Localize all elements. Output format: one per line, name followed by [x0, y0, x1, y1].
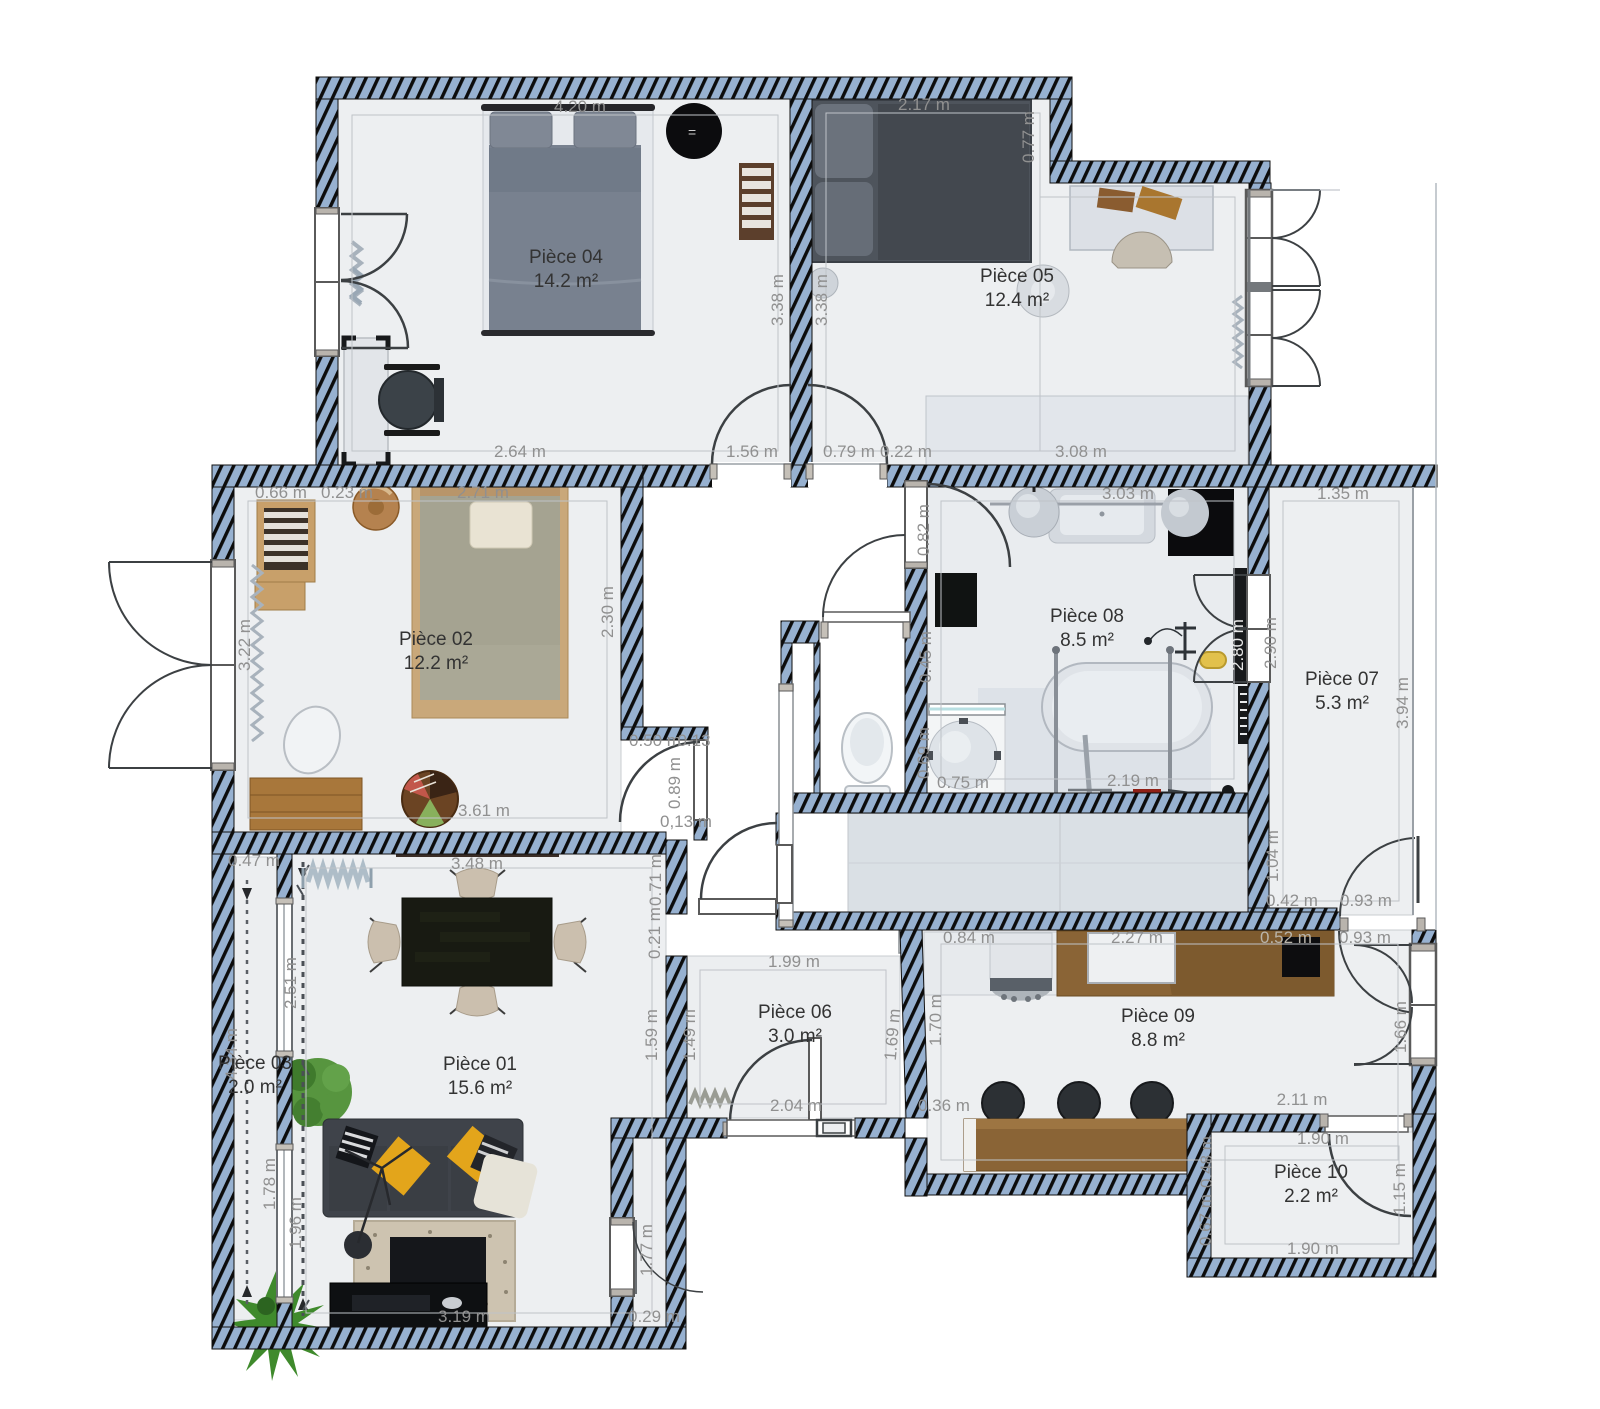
svg-text:1.90 m: 1.90 m — [1297, 1129, 1349, 1148]
svg-text:2.51 m: 2.51 m — [281, 957, 300, 1009]
svg-text:2.27 m: 2.27 m — [1111, 928, 1163, 947]
svg-text:Pièce 07: Pièce 07 — [1305, 669, 1379, 690]
svg-text:3.22 m: 3.22 m — [235, 619, 254, 671]
svg-text:0.77 m: 0.77 m — [1019, 111, 1038, 163]
svg-text:Pièce 10: Pièce 10 — [1274, 1162, 1348, 1183]
svg-text:3.38 m: 3.38 m — [812, 274, 831, 326]
svg-text:0.52 m: 0.52 m — [1260, 928, 1312, 947]
svg-text:1.77 m: 1.77 m — [637, 1224, 656, 1276]
svg-text:2.17 m: 2.17 m — [898, 95, 950, 114]
svg-text:0.69 m: 0.69 m — [914, 727, 933, 779]
svg-text:3.0 m²: 3.0 m² — [768, 1026, 822, 1047]
svg-text:1.04 m: 1.04 m — [1263, 830, 1282, 882]
svg-text:0,13 m: 0,13 m — [660, 812, 712, 831]
svg-text:2.90 m: 2.90 m — [1261, 617, 1280, 669]
svg-text:2.30 m: 2.30 m — [598, 586, 617, 638]
svg-text:2.71 m: 2.71 m — [457, 483, 509, 502]
svg-text:Pièce 08: Pièce 08 — [1050, 606, 1124, 627]
svg-text:0.75 m: 0.75 m — [937, 773, 989, 792]
svg-text:1.96 m: 1.96 m — [286, 1197, 305, 1249]
svg-text:3.03 m: 3.03 m — [1102, 484, 1154, 503]
svg-text:0.71 m: 0.71 m — [646, 854, 665, 906]
svg-text:0.79 m: 0.79 m — [823, 442, 875, 461]
svg-text:0.29 m: 0.29 m — [628, 1307, 680, 1326]
svg-text:1.90 m: 1.90 m — [1287, 1239, 1339, 1258]
svg-text:1.99 m: 1.99 m — [768, 952, 820, 971]
svg-text:12.4 m²: 12.4 m² — [985, 290, 1049, 311]
svg-text:0.21 m: 0.21 m — [645, 907, 664, 959]
svg-text:Pièce 03: Pièce 03 — [218, 1053, 292, 1074]
svg-text:Pièce 04: Pièce 04 — [529, 247, 603, 268]
svg-text:0.45 m: 0.45 m — [916, 631, 935, 683]
svg-text:15.6 m²: 15.6 m² — [448, 1078, 512, 1099]
svg-text:1.15 m: 1.15 m — [1390, 1163, 1409, 1215]
svg-text:1.78 m: 1.78 m — [260, 1158, 279, 1210]
svg-text:1.56 m: 1.56 m — [726, 442, 778, 461]
svg-text:0.22 m: 0.22 m — [880, 442, 932, 461]
svg-text:2.19 m: 2.19 m — [1107, 771, 1159, 790]
svg-text:0.93 m: 0.93 m — [1339, 928, 1391, 947]
svg-text:0.13: 0.13 — [677, 731, 710, 750]
svg-text:3.61 m: 3.61 m — [458, 801, 510, 820]
svg-text:2.2 m²: 2.2 m² — [1284, 1186, 1338, 1207]
svg-text:0.48 m: 0.48 m — [1197, 1136, 1216, 1188]
svg-text:3.08 m: 3.08 m — [1055, 442, 1107, 461]
svg-text:0.47 m: 0.47 m — [228, 851, 280, 870]
svg-text:0.42 m: 0.42 m — [1266, 891, 1318, 910]
svg-text:0.36 m: 0.36 m — [918, 1096, 970, 1115]
svg-text:0.67 m: 0.67 m — [1196, 1194, 1215, 1246]
svg-text:0.84 m: 0.84 m — [943, 928, 995, 947]
svg-text:Pièce 09: Pièce 09 — [1121, 1006, 1195, 1027]
svg-text:3.38 m: 3.38 m — [768, 274, 787, 326]
svg-text:2.0 m²: 2.0 m² — [228, 1077, 282, 1098]
svg-text:2.11 m: 2.11 m — [1277, 1090, 1328, 1109]
svg-text:1.49 m: 1.49 m — [680, 1009, 699, 1061]
svg-text:5.3 m²: 5.3 m² — [1315, 693, 1369, 714]
svg-text:4.20 m: 4.20 m — [554, 97, 606, 116]
svg-text:0.50 m: 0.50 m — [629, 731, 681, 750]
svg-text:=: = — [688, 124, 696, 140]
svg-text:Pièce 02: Pièce 02 — [399, 629, 473, 650]
svg-text:2.80 m: 2.80 m — [1228, 619, 1247, 671]
svg-text:3.94 m: 3.94 m — [1393, 677, 1412, 729]
svg-text:2.64 m: 2.64 m — [494, 442, 546, 461]
svg-text:Pièce 05: Pièce 05 — [980, 266, 1054, 287]
svg-text:3.19 m: 3.19 m — [438, 1307, 490, 1326]
svg-text:3.48 m: 3.48 m — [451, 854, 503, 873]
svg-text:0.66 m: 0.66 m — [255, 483, 307, 502]
svg-text:12.2 m²: 12.2 m² — [404, 653, 468, 674]
svg-text:Pièce 01: Pièce 01 — [443, 1054, 517, 1075]
svg-text:1.66 m: 1.66 m — [1391, 1001, 1410, 1053]
svg-text:0.82 m: 0.82 m — [914, 504, 933, 556]
svg-text:1.70 m: 1.70 m — [926, 994, 945, 1046]
svg-text:1.35 m: 1.35 m — [1317, 484, 1369, 503]
svg-text:0.23 m: 0.23 m — [321, 483, 373, 502]
svg-text:8.5 m²: 8.5 m² — [1060, 630, 1114, 651]
svg-text:14.2 m²: 14.2 m² — [534, 271, 598, 292]
svg-text:2.04 m: 2.04 m — [770, 1096, 822, 1115]
svg-text:8.8 m²: 8.8 m² — [1131, 1030, 1185, 1051]
svg-text:0.93 m: 0.93 m — [1340, 891, 1392, 910]
svg-text:1.59 m: 1.59 m — [642, 1009, 661, 1061]
svg-text:0.89 m: 0.89 m — [665, 757, 684, 809]
svg-text:Pièce 06: Pièce 06 — [758, 1002, 832, 1023]
